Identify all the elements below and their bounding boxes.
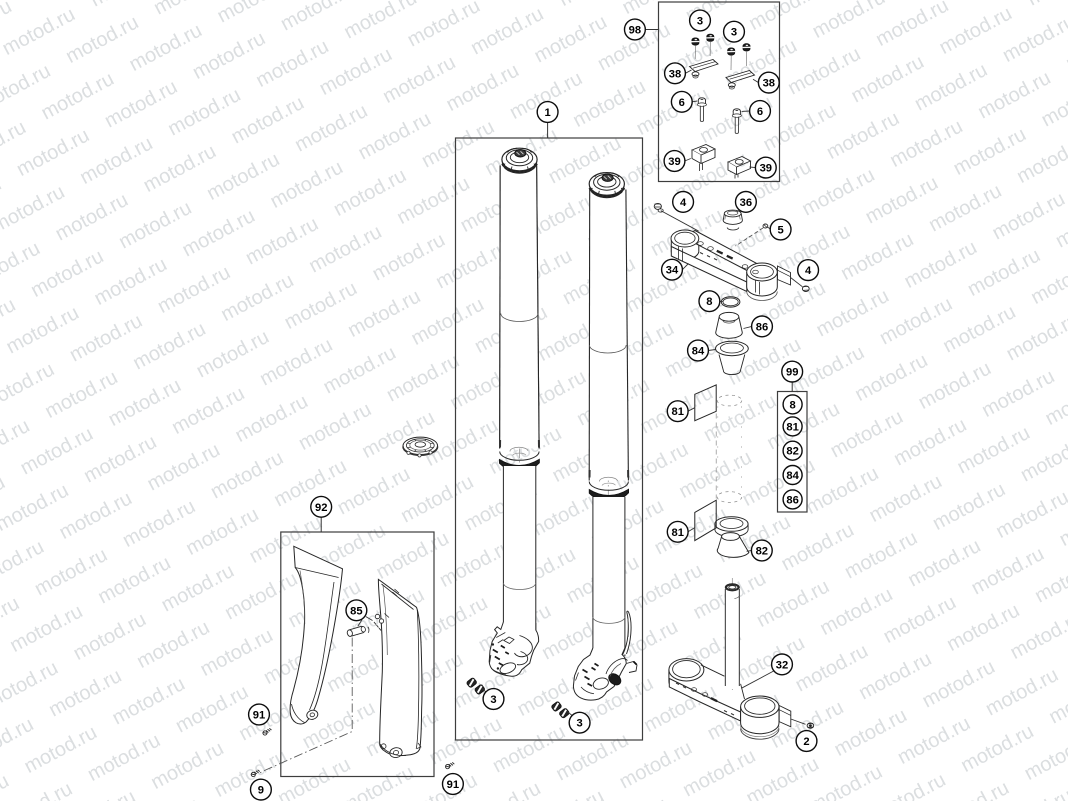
svg-text:86: 86 [756,321,768,333]
svg-text:34: 34 [666,265,679,277]
svg-text:99: 99 [786,367,798,379]
svg-text:82: 82 [786,446,798,458]
svg-text:91: 91 [253,710,265,722]
svg-text:38: 38 [763,78,775,90]
svg-text:4: 4 [680,197,687,209]
svg-text:81: 81 [671,527,683,539]
svg-text:6: 6 [757,106,763,118]
svg-text:86: 86 [786,494,798,506]
svg-text:3: 3 [490,694,496,706]
svg-text:82: 82 [756,546,768,558]
svg-text:92: 92 [315,502,327,514]
svg-text:38: 38 [669,68,681,80]
svg-text:8: 8 [706,296,712,308]
svg-text:39: 39 [668,156,680,168]
svg-text:84: 84 [786,470,799,482]
svg-text:6: 6 [679,97,685,109]
svg-text:9: 9 [258,785,264,797]
svg-text:5: 5 [777,225,783,237]
svg-text:2: 2 [803,736,809,748]
svg-text:8: 8 [789,399,795,411]
svg-text:81: 81 [786,421,798,433]
svg-text:3: 3 [731,27,737,39]
svg-text:39: 39 [760,163,772,175]
svg-text:98: 98 [629,25,641,37]
svg-text:36: 36 [740,197,752,209]
svg-text:3: 3 [697,16,703,28]
svg-text:81: 81 [671,406,683,418]
svg-text:1: 1 [544,107,550,119]
svg-text:32: 32 [776,659,788,671]
svg-text:85: 85 [350,605,362,617]
svg-text:91: 91 [447,779,459,791]
svg-text:4: 4 [805,265,812,277]
svg-text:84: 84 [692,346,705,358]
svg-text:3: 3 [576,718,582,730]
